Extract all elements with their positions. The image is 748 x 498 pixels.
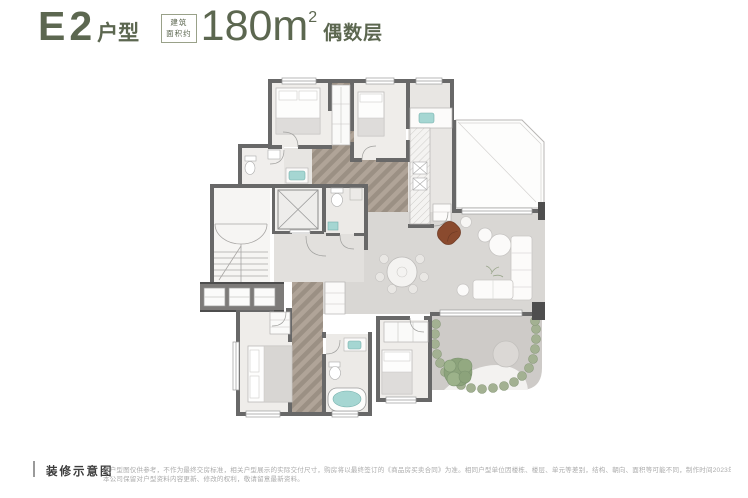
unit-title: E2 — [38, 6, 96, 47]
basin-icon — [289, 171, 305, 180]
footer-divider-bar — [33, 461, 35, 477]
bathtub-icon — [333, 391, 361, 407]
toilet-icon — [332, 194, 343, 207]
disclaimer: 本户型图仅供参考，不作为最终交房标准，相关户型展示的实际交付尺寸，购房将以最终签… — [103, 466, 731, 485]
window-kitchen — [416, 78, 442, 84]
corridor-closet — [325, 282, 345, 314]
terrace-top — [456, 120, 544, 208]
area-superscript: 2 — [308, 9, 317, 26]
area-number: 180m — [201, 2, 309, 50]
kitchen-counter — [410, 128, 430, 224]
basin-icon — [348, 341, 361, 349]
side-table-icon — [457, 284, 469, 296]
elevator — [278, 190, 318, 233]
slider-living-terrace — [462, 208, 532, 214]
wall-block-terrace — [538, 202, 545, 220]
window-bedroom-2 — [366, 78, 394, 84]
slider-living-garden — [440, 310, 522, 316]
elevator-door — [290, 230, 310, 233]
wardrobe-icon — [270, 312, 290, 334]
room-foyer — [274, 234, 364, 282]
garden-patio-circle — [493, 341, 519, 367]
bedroom-2-furniture — [358, 92, 384, 136]
floor-plan — [186, 76, 578, 434]
window-bath-3 — [332, 411, 358, 417]
disclaimer-line-2: 本公司保留对户型资料内容更新、修改的权利，敬请留意最新资料。 — [103, 475, 731, 484]
disclaimer-line-1: 本户型图仅供参考，不作为最终交房标准，相关户型展示的实际交付尺寸，购房将以最终签… — [103, 466, 731, 475]
sofa-icon — [511, 236, 532, 300]
area-label-line2: 面积约 — [166, 28, 192, 40]
basin-icon — [328, 222, 338, 230]
window-master-bottom — [246, 411, 280, 417]
pouf-icon — [461, 217, 472, 228]
wall-block-garden — [532, 302, 545, 320]
floor-plan-graphic — [186, 76, 578, 434]
unit-title-suffix: 户型 — [97, 23, 139, 47]
hall-wood-floor-bottom — [292, 282, 323, 414]
window-bedroom-3 — [386, 397, 416, 403]
area-value: 180m2 — [201, 6, 317, 47]
window-master-left — [233, 342, 239, 390]
bay-window — [200, 284, 284, 310]
area-label-box: 建筑 面积约 — [161, 14, 197, 43]
garden-tree — [444, 358, 472, 386]
area-label-line1: 建筑 — [166, 17, 192, 29]
floor-parity-label: 偶数层 — [323, 24, 383, 47]
garden-terrace — [431, 316, 543, 394]
floorplan-page: E2 户型 建筑 面积约 180m2 偶数层 — [0, 0, 748, 498]
window-bedroom-1 — [282, 78, 316, 84]
toilet-icon — [245, 162, 255, 175]
sink-icon — [419, 113, 434, 123]
coffee-table-icon — [489, 234, 511, 256]
toilet-icon — [330, 367, 341, 380]
header: E2 户型 建筑 面积约 180m2 偶数层 — [38, 6, 383, 47]
dining-table-icon — [387, 257, 417, 287]
